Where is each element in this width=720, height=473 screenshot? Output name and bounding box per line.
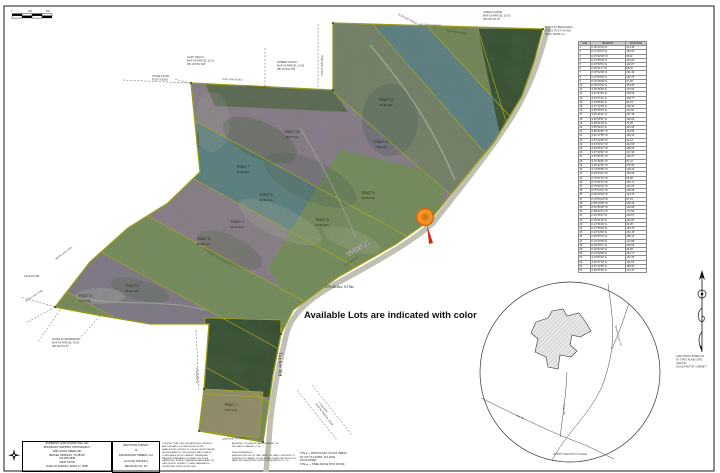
available-lots-note: Available Lots are indicated with color xyxy=(304,310,477,321)
compass-star-icon xyxy=(8,449,20,461)
plat-sheet: 0 200 400 xyxy=(0,0,720,473)
pob-label: STEEL POST FOUND xyxy=(545,29,571,33)
pob-label: POINT OF BEGINNING xyxy=(545,25,572,29)
fence-note: POST AND FENCE xyxy=(398,13,418,25)
owner-label: MAP 26 PARCEL 10.00 xyxy=(483,14,511,18)
bearing-label: N 86°26'33" W 310.55' xyxy=(222,437,247,441)
tract-acres: 26.11 Acs xyxy=(125,289,139,293)
north-note-line: SCALE FACTOR: 0.9999877 xyxy=(676,366,707,369)
total-acreage-label: 170.48 Acs TOTAL xyxy=(325,285,354,289)
tract-label: TRACT 9 xyxy=(361,191,374,195)
symbol-legend: SYM ● --- IRON PIN SET (1/2"X18" REBAR W… xyxy=(300,452,378,466)
vicinity-road-label: Tucker Rd xyxy=(562,404,565,416)
tract-label: TRACT 12 xyxy=(379,98,394,102)
owner-label: DB 178 PG 408 xyxy=(187,62,206,66)
scale-bar: 0 200 400 xyxy=(11,10,52,18)
owner-label: GARY PEACH xyxy=(187,55,204,59)
tract-label: TRACT 10 xyxy=(285,130,300,134)
survey-name-box: PARTITION SURVEY of KINGSWOOD TIMBER, LL… xyxy=(112,441,160,473)
owner-label: ROBERT PEACH xyxy=(277,60,297,64)
fence-note: POST AND FENCE xyxy=(222,78,243,82)
owner-label: JAMES HARRIS xyxy=(483,10,502,14)
owner-label: DB 145 PG 57 xyxy=(52,344,69,348)
owner-label: DB 170 PG 780 xyxy=(277,67,296,71)
owner-label: MAP 26 PARCEL 14.00 xyxy=(277,64,305,68)
pob-label: 35.43' FROM C.L. xyxy=(545,32,566,36)
white-oak-trail-note: WHITE OAK TRAIL xyxy=(55,245,74,260)
surveyor-title-box: SUPERIOR LAND SURVEYING, INC BOUNDARY MA… xyxy=(22,441,112,472)
post-found-note: POST FOUND xyxy=(152,79,168,82)
line-table-row: 54S 62°06'29" E144.37' xyxy=(579,268,647,272)
tract-acres: 11.60 Acs xyxy=(259,198,273,202)
scale-tick: 0 xyxy=(11,10,13,13)
certification-notes: I CERTIFY THAT THIS IS A CATEGORY I SURV… xyxy=(162,443,228,469)
bearing-label: S 01°20'45" W xyxy=(196,132,199,148)
north-arrow-icon xyxy=(698,270,706,352)
tract-label: TRACT 3 xyxy=(78,294,91,298)
tract-acres: 13.91 Acs xyxy=(315,223,329,227)
vicinity-map: Tucker Rd Beacon Church Rd Hwy 69 VICINI… xyxy=(480,282,660,462)
owner-label: DONALD HENDERSON xyxy=(52,337,80,341)
tract-acres: 17.28 Acs xyxy=(379,103,393,107)
axle-found-note: AXLE FOUND xyxy=(24,275,40,278)
bearing-label: N 01°42'18" W xyxy=(195,368,198,384)
tract-acres: 9.77 Acs xyxy=(79,299,91,303)
scale-tick: 200 xyxy=(28,10,33,13)
tract-acres: 5.27 Acs xyxy=(225,408,237,412)
tract-label: TRACT 6 xyxy=(259,193,272,197)
tract-acres: 13.36 Acs xyxy=(236,170,250,174)
tract-acres: 7.08 Acs xyxy=(375,145,387,149)
owner-label: MAP 26 PARCEL 11.01 xyxy=(187,59,215,63)
tract-label: TRACT 1 xyxy=(224,403,237,407)
line-table-body: 1N 08°12'44" E214.36'2N 12°40'19" E180.2… xyxy=(579,46,647,273)
fence-note: POST AND FENCE xyxy=(320,55,323,76)
tract-label: TRACT 8 xyxy=(315,218,328,222)
tract-label: TRACT 2 xyxy=(125,284,138,288)
north-note: GRID NORTH BASED ON TN STATE PLANE GRID … xyxy=(676,355,707,369)
tract-label: TRACT 5 xyxy=(196,237,209,241)
tract-label: TRACT 4 xyxy=(230,220,243,224)
white-oak-trail-note: WHITE OAK TRAIL xyxy=(25,289,45,303)
tract-acres: 18.97 Acs xyxy=(285,135,299,139)
tract-acres: 10.01 Acs xyxy=(230,225,244,229)
owner-label: MAP 50 PARCEL 34.00 xyxy=(52,341,80,345)
road-label-tucker: Tucker Rd xyxy=(276,352,283,376)
tract-acres: 12.46 Acs xyxy=(196,242,210,246)
tract-label: TRACT 7 xyxy=(236,165,249,169)
tract-acres: 13.35 Acs xyxy=(361,196,375,200)
scale-tick: 400 xyxy=(46,10,51,13)
tract-label: TRACT 11 xyxy=(374,140,389,144)
line-table: LINE BEARING DISTANCE 1N 08°12'44" E214.… xyxy=(578,41,647,273)
owner-label: DB 232 PG 78 xyxy=(483,17,500,21)
vicinity-caption: VICINITY MAP NOT TO SCALE xyxy=(553,453,587,456)
